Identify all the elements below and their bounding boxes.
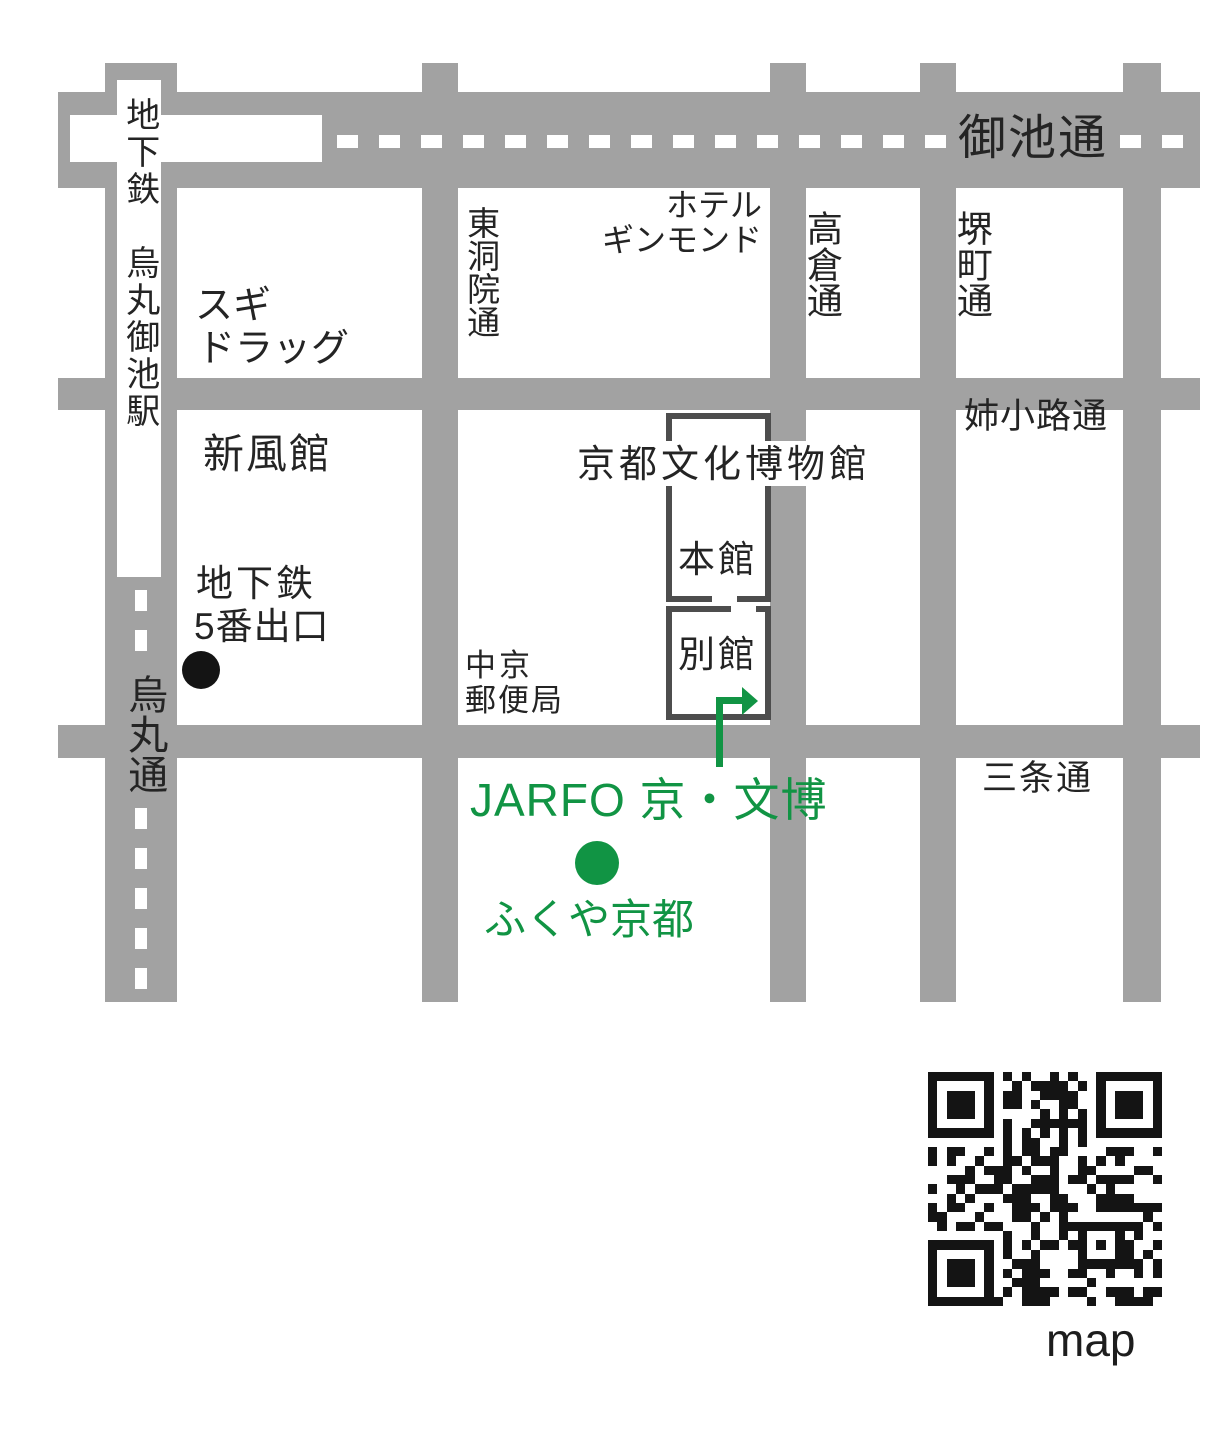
hotel-ginmond-label-line1: ホテル	[560, 188, 762, 223]
venue-name-label: JARFO 京・文博	[470, 776, 828, 826]
venue-shop-label: ふくや京都	[484, 897, 694, 942]
road-sanjo-dori	[58, 725, 1200, 758]
road-higashinotoin-dori	[422, 63, 458, 1002]
post-office-label-line2: 郵便局	[465, 684, 564, 717]
entrance-arrow-bar	[716, 697, 744, 704]
venue-location-dot	[575, 841, 619, 885]
subway-exit-dot	[182, 651, 220, 689]
road-takakura-dori	[770, 63, 806, 1002]
shinpukan-label: 新風館	[203, 432, 332, 476]
street-label-oike: 御池通	[958, 113, 1108, 165]
road-sakaimachi-dori	[920, 63, 956, 1002]
hotel-ginmond-label-line2: ギンモンド	[560, 223, 762, 258]
subway-exit-label-line2: 5番出口	[194, 607, 330, 647]
street-label-higashinotoin: 東洞院通	[463, 206, 499, 338]
sugi-drug-label-line1: スギ	[195, 286, 271, 327]
bekkan-door-gap	[731, 605, 756, 613]
access-map: 御池通 姉小路通 三条通 烏丸通 東洞院通 高倉通 堺町通 地下鉄 烏丸御池駅 …	[0, 0, 1231, 1450]
street-label-aneyakoji: 姉小路通	[964, 398, 1108, 436]
oike-dashed-line-east	[1120, 135, 1200, 148]
honkan-door-gap	[712, 595, 737, 603]
sugi-drug-label-line2: ドラッグ	[197, 329, 349, 370]
street-label-karasuma: 烏丸通	[122, 674, 165, 794]
post-office-label-line1: 中京	[465, 649, 533, 682]
honkan-label: 本館	[678, 540, 758, 580]
qr-code	[928, 1072, 1162, 1306]
karasuma-dashed-line-lower	[135, 808, 147, 1002]
oike-dashed-line-west	[337, 135, 955, 148]
bekkan-label: 別館	[678, 635, 758, 675]
entrance-arrow-stem	[716, 700, 723, 767]
qr-map-label: map	[1046, 1316, 1135, 1366]
station-label: 地下鉄 烏丸御池駅	[121, 97, 158, 430]
subway-exit-label-line1: 地下鉄	[196, 564, 316, 604]
station-area-horizontal	[70, 115, 322, 162]
street-label-sanjo: 三条通	[982, 760, 1093, 798]
karasuma-dashed-line-upper	[135, 590, 147, 658]
museum-label: 京都文化博物館	[577, 445, 871, 486]
street-label-takakura: 高倉通	[802, 210, 841, 318]
street-label-sakaimachi: 堺町通	[952, 210, 991, 318]
road-east-edge	[1123, 63, 1161, 1002]
entrance-arrow-icon	[742, 687, 758, 715]
